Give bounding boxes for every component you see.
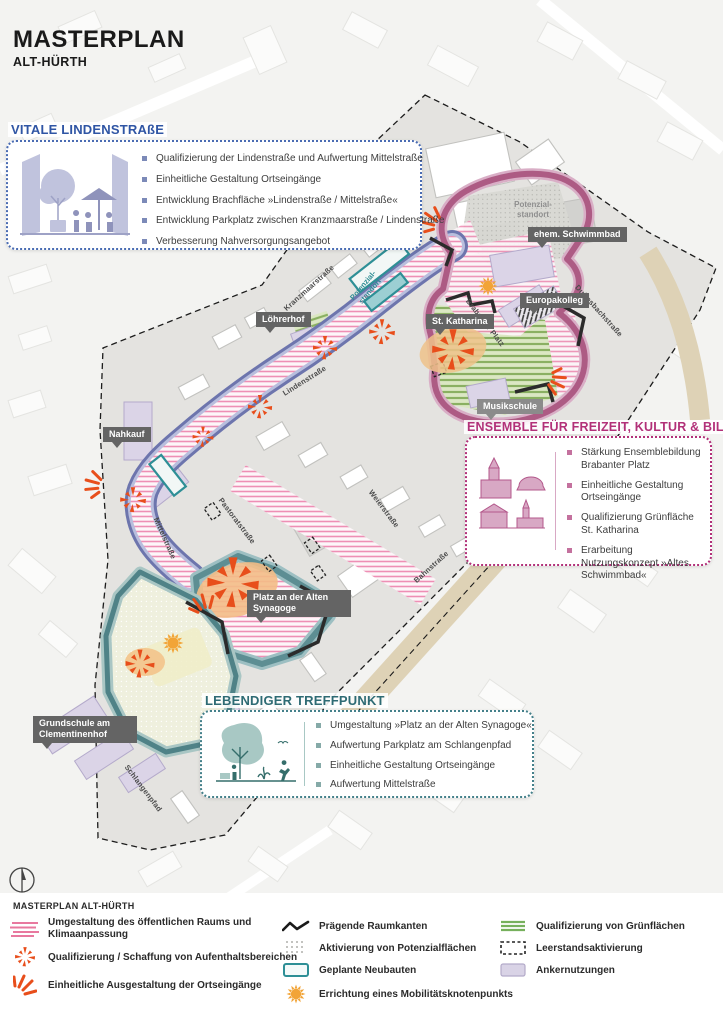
item-text: Einheitliche Gestaltung Ortseingänge <box>581 480 703 506</box>
area-label-line2: standort <box>517 210 549 219</box>
legend-label: Aktivierung von Potenzialflächen <box>319 943 476 954</box>
item-text: Umgestaltung »Platz an der Alten Synagog… <box>330 720 532 733</box>
bullet-square <box>567 450 572 455</box>
bullet-square <box>142 218 147 223</box>
green-lines-icon <box>498 919 528 933</box>
legend-row: Qualifizierung / Schaffung von Aufenthal… <box>10 945 278 969</box>
item-text: Einheitliche Gestaltung Ortseingänge <box>330 760 495 773</box>
list-item: Qualifizierung der Lindenstraße und Aufw… <box>142 153 444 166</box>
callout-title-vitale: VITALE LINDENSTRAßE <box>8 122 167 137</box>
place-label-europakolleg: Europakolleg <box>520 293 589 308</box>
legend-row: Errichtung eines Mobilitätsknotenpunkts <box>281 983 513 1005</box>
list-item: Stärkung Ensemblebildung Brabanter Platz <box>567 447 703 473</box>
legend-label: Qualifizierung von Grünflächen <box>536 921 685 932</box>
bullet-square <box>316 723 321 728</box>
page-title: MASTERPLAN ALT-HÜRTH <box>13 28 185 69</box>
legend-label: Ankernutzungen <box>536 965 615 976</box>
place-label-katharina: St. Katharina <box>426 314 494 329</box>
bullet-square <box>567 515 572 520</box>
legend-row: Prägende Raumkanten <box>281 917 513 935</box>
list-item: Qualifizierung Grünfläche St. Katharina <box>567 512 703 538</box>
title-sub: ALT-HÜRTH <box>13 55 185 69</box>
dot-grid-icon <box>281 940 311 956</box>
item-text: Qualifizierung Grünfläche St. Katharina <box>581 512 703 538</box>
list-item: Erarbeitung Nutzungskonzept »Altes Schwi… <box>567 545 703 583</box>
place-label-nahkauf: Nahkauf <box>103 427 151 442</box>
list-item: Entwicklung Parkplatz zwischen Kranzmaar… <box>142 215 444 228</box>
callout-treffpunkt: Umgestaltung »Platz an der Alten Synagog… <box>200 710 534 798</box>
legend-title: MASTERPLAN ALT-HÜRTH <box>13 901 135 911</box>
place-label-loehrerhof: Löhrerhof <box>256 312 311 327</box>
list-item: Einheitliche Gestaltung Ortseingänge <box>316 760 532 773</box>
item-text: Aufwertung Parkplatz am Schlangenpfad <box>330 740 511 753</box>
ensemble-items: Stärkung Ensemblebildung Brabanter Platz… <box>567 447 703 583</box>
legend-label: Leerstandsaktivierung <box>536 943 643 954</box>
legend-panel: MASTERPLAN ALT-HÜRTH Umgestaltung des öf… <box>0 893 723 1024</box>
list-item: Aufwertung Parkplatz am Schlangenpfad <box>316 740 532 753</box>
legend-row: Geplante Neubauten <box>281 961 513 979</box>
legend-label: Qualifizierung / Schaffung von Aufenthal… <box>48 952 297 963</box>
callout-vitale: Qualifizierung der Lindenstraße und Aufw… <box>6 140 422 250</box>
bullet-square <box>142 156 147 161</box>
list-item: Einheitliche Gestaltung Ortseingänge <box>142 174 444 187</box>
bullet-square <box>142 239 147 244</box>
list-item: Verbesserung Nahversorgungsangebot <box>142 236 444 249</box>
callout-title-treffpunkt: LEBENDIGER TREFFPUNKT <box>202 693 388 708</box>
legend-label: Geplante Neubauten <box>319 965 416 976</box>
north-arrow-icon <box>10 868 34 892</box>
legend-row: Aktivierung von Potenzialflächen <box>281 939 513 957</box>
legend-row: Umgestaltung des öffentlichen Raums und … <box>10 917 278 941</box>
bullet-square <box>142 177 147 182</box>
item-text: Entwicklung Parkplatz zwischen Kranzmaar… <box>156 215 444 228</box>
list-item: Einheitliche Gestaltung Ortseingänge <box>567 480 703 506</box>
legend-row: Einheitliche Ausgestaltung der Ortseingä… <box>10 973 278 997</box>
legend-row: Ankernutzungen <box>498 961 685 979</box>
sun-icon <box>281 983 311 1005</box>
legend-column-1: Umgestaltung des öffentlichen Raums und … <box>10 917 278 1001</box>
bullet-square <box>567 483 572 488</box>
area-label-potenzialstandort: Potenzial- standort <box>505 200 561 219</box>
list-item: Entwicklung Brachfläche »Lindenstraße / … <box>142 195 444 208</box>
item-text: Stärkung Ensemblebildung Brabanter Platz <box>581 447 703 473</box>
item-text: Entwicklung Brachfläche »Lindenstraße / … <box>156 195 398 208</box>
legend-label: Einheitliche Ausgestaltung der Ortseingä… <box>48 980 262 991</box>
ensemble-illustration <box>477 450 549 550</box>
pink-lines-icon <box>10 920 40 938</box>
title-main: MASTERPLAN <box>13 28 185 52</box>
callout-title-ensemble: ENSEMBLE FÜR FREIZEIT, KULTUR & BILDUNG <box>464 420 723 434</box>
entry-rays-icon <box>10 973 40 997</box>
masterplan-poster: MASTERPLAN ALT-HÜRTH ehem. Schwimmbad Eu… <box>0 0 723 1024</box>
callout-ensemble: Stärkung Ensemblebildung Brabanter Platz… <box>465 436 712 566</box>
callout-divider <box>555 452 556 550</box>
bullet-square <box>316 763 321 768</box>
legend-label: Errichtung eines Mobilitätsknotenpunkts <box>319 989 513 1000</box>
place-label-synagoge: Platz an der Alten Synagoge <box>247 590 351 617</box>
teal-rect-icon <box>281 962 311 978</box>
item-text: Verbesserung Nahversorgungsangebot <box>156 236 330 249</box>
legend-row: Leerstandsaktivierung <box>498 939 685 957</box>
callout-divider <box>304 722 305 786</box>
vitale-illustration <box>16 148 134 242</box>
list-item: Umgestaltung »Platz an der Alten Synagog… <box>316 720 532 733</box>
place-label-musikschule: Musikschule <box>477 399 543 414</box>
area-label-line1: Potenzial- <box>514 200 552 209</box>
bullet-square <box>316 782 321 787</box>
legend-label: Umgestaltung des öffentlichen Raums und … <box>48 917 276 941</box>
legend-label: Prägende Raumkanten <box>319 921 427 932</box>
legend-row: Qualifizierung von Grünflächen <box>498 917 685 935</box>
item-text: Aufwertung Mittelstraße <box>330 779 436 792</box>
zigzag-icon <box>281 919 311 933</box>
item-text: Einheitliche Gestaltung Ortseingänge <box>156 174 321 187</box>
vitale-items: Qualifizierung der Lindenstraße und Aufw… <box>142 153 444 249</box>
starburst-icon <box>10 945 40 969</box>
item-text: Qualifizierung der Lindenstraße und Aufw… <box>156 153 423 166</box>
list-item: Aufwertung Mittelstraße <box>316 779 532 792</box>
bullet-square <box>316 743 321 748</box>
item-text: Erarbeitung Nutzungskonzept »Altes Schwi… <box>581 545 703 583</box>
dashed-rect-icon <box>498 940 528 956</box>
legend-column-2: Prägende Raumkanten Aktivierung von Pote… <box>281 917 513 1009</box>
place-label-schwimmbad: ehem. Schwimmbad <box>528 227 627 242</box>
treffpunkt-items: Umgestaltung »Platz an der Alten Synagog… <box>316 720 532 792</box>
legend-column-3: Qualifizierung von Grünflächen Leerstand… <box>498 917 685 983</box>
purple-rect-icon <box>498 962 528 978</box>
bullet-square <box>567 548 572 553</box>
place-label-grundschule: Grundschule am Clementinenhof <box>33 716 137 743</box>
bullet-square <box>142 198 147 203</box>
treffpunkt-illustration <box>212 717 300 791</box>
